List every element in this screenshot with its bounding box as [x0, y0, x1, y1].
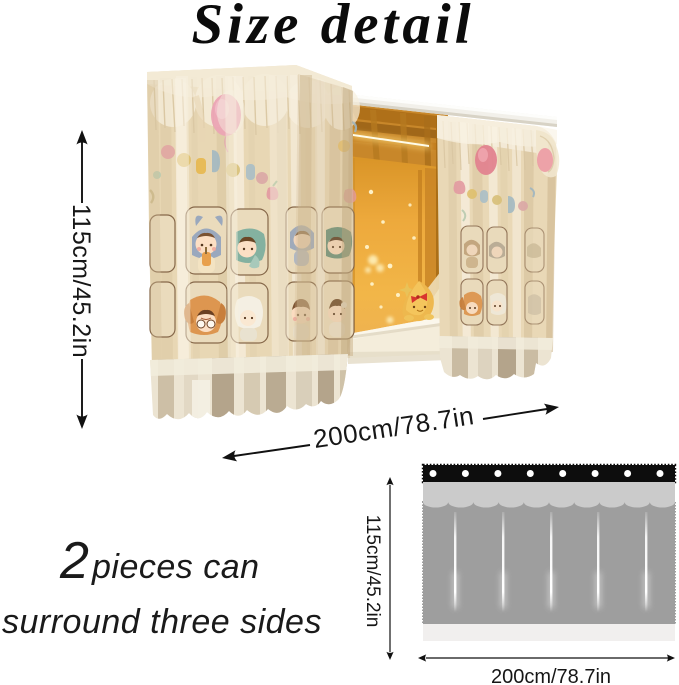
svg-text:200cm/78.7in: 200cm/78.7in	[491, 666, 611, 685]
svg-text:115cm/45.2in: 115cm/45.2in	[362, 515, 383, 628]
svg-text:surround three sides: surround three sides	[2, 603, 322, 641]
svg-text:2: 2	[59, 532, 89, 590]
svg-text:115cm/45.2in: 115cm/45.2in	[67, 204, 95, 358]
svg-text:200cm/78.7in: 200cm/78.7in	[311, 400, 476, 454]
svg-text:pieces can: pieces can	[91, 548, 260, 586]
svg-text:Size detail: Size detail	[191, 0, 474, 56]
